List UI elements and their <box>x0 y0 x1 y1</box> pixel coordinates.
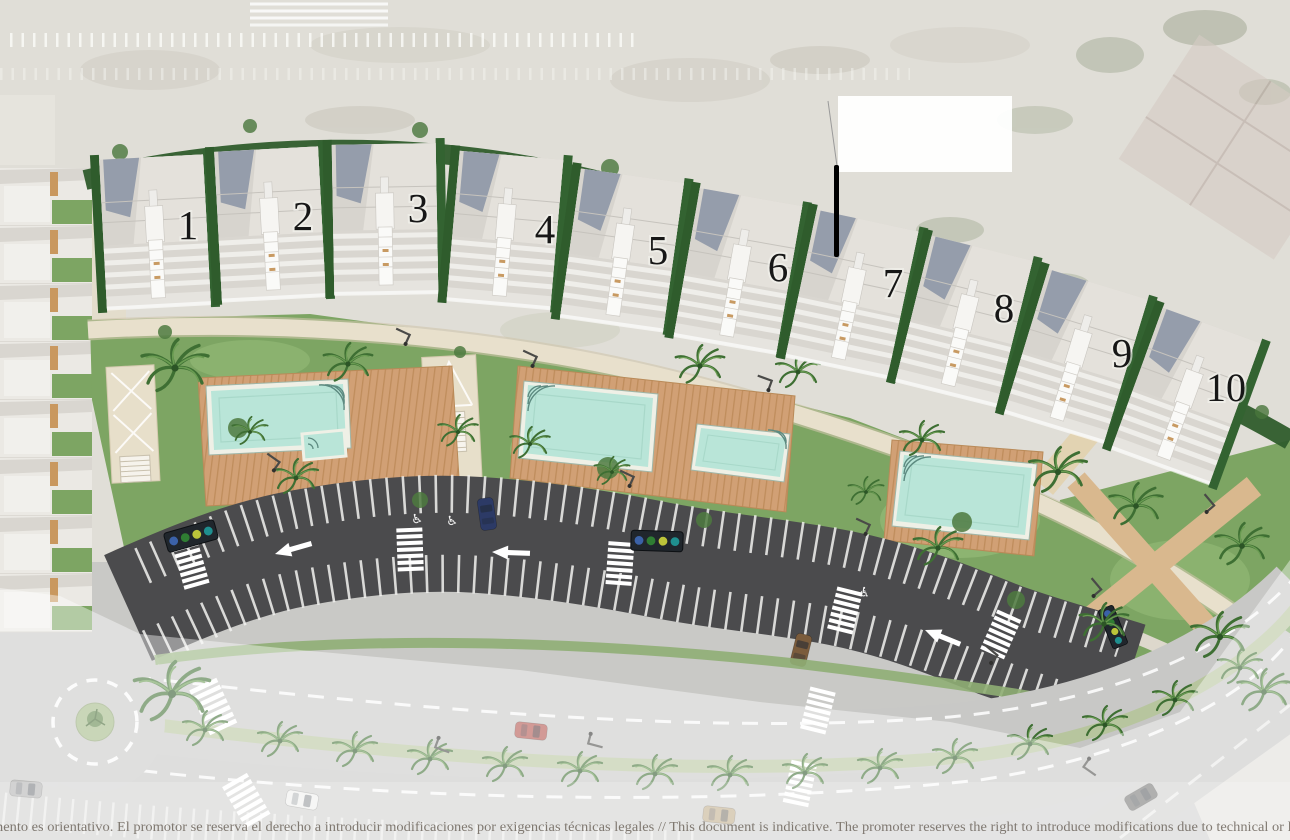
blank-label-patch <box>838 96 1012 172</box>
pool-2 <box>518 381 658 472</box>
unit-number: 7 <box>883 260 904 306</box>
handicap-parking-icon: ♿ <box>410 511 424 527</box>
unit-number: 6 <box>768 244 789 290</box>
waste-containers-icon <box>631 530 684 552</box>
house-unit-1 <box>90 149 220 313</box>
pool-1 <box>206 379 351 460</box>
handicap-parking-icon: ♿ <box>445 513 459 529</box>
site-plan: ♿ ♿ ♿ <box>0 0 1290 840</box>
unit-number: 3 <box>408 185 429 231</box>
site-plan-drawing: ♿ ♿ ♿ <box>0 0 1290 840</box>
unit-number: 9 <box>1112 330 1133 376</box>
house-unit-3 <box>323 138 448 298</box>
unit-number: 10 <box>1206 365 1246 410</box>
unit-number: 8 <box>994 285 1015 331</box>
marker-line-icon <box>834 165 839 257</box>
house-unit-2 <box>205 141 335 305</box>
unit-number: 4 <box>535 206 556 252</box>
unit-number: 2 <box>293 193 314 239</box>
unit-number: 1 <box>178 202 199 248</box>
disclaimer-text: mento es orientativo. El promotor se res… <box>0 819 1290 834</box>
unit-number: 5 <box>648 227 669 273</box>
ramp-path-left <box>106 365 160 483</box>
